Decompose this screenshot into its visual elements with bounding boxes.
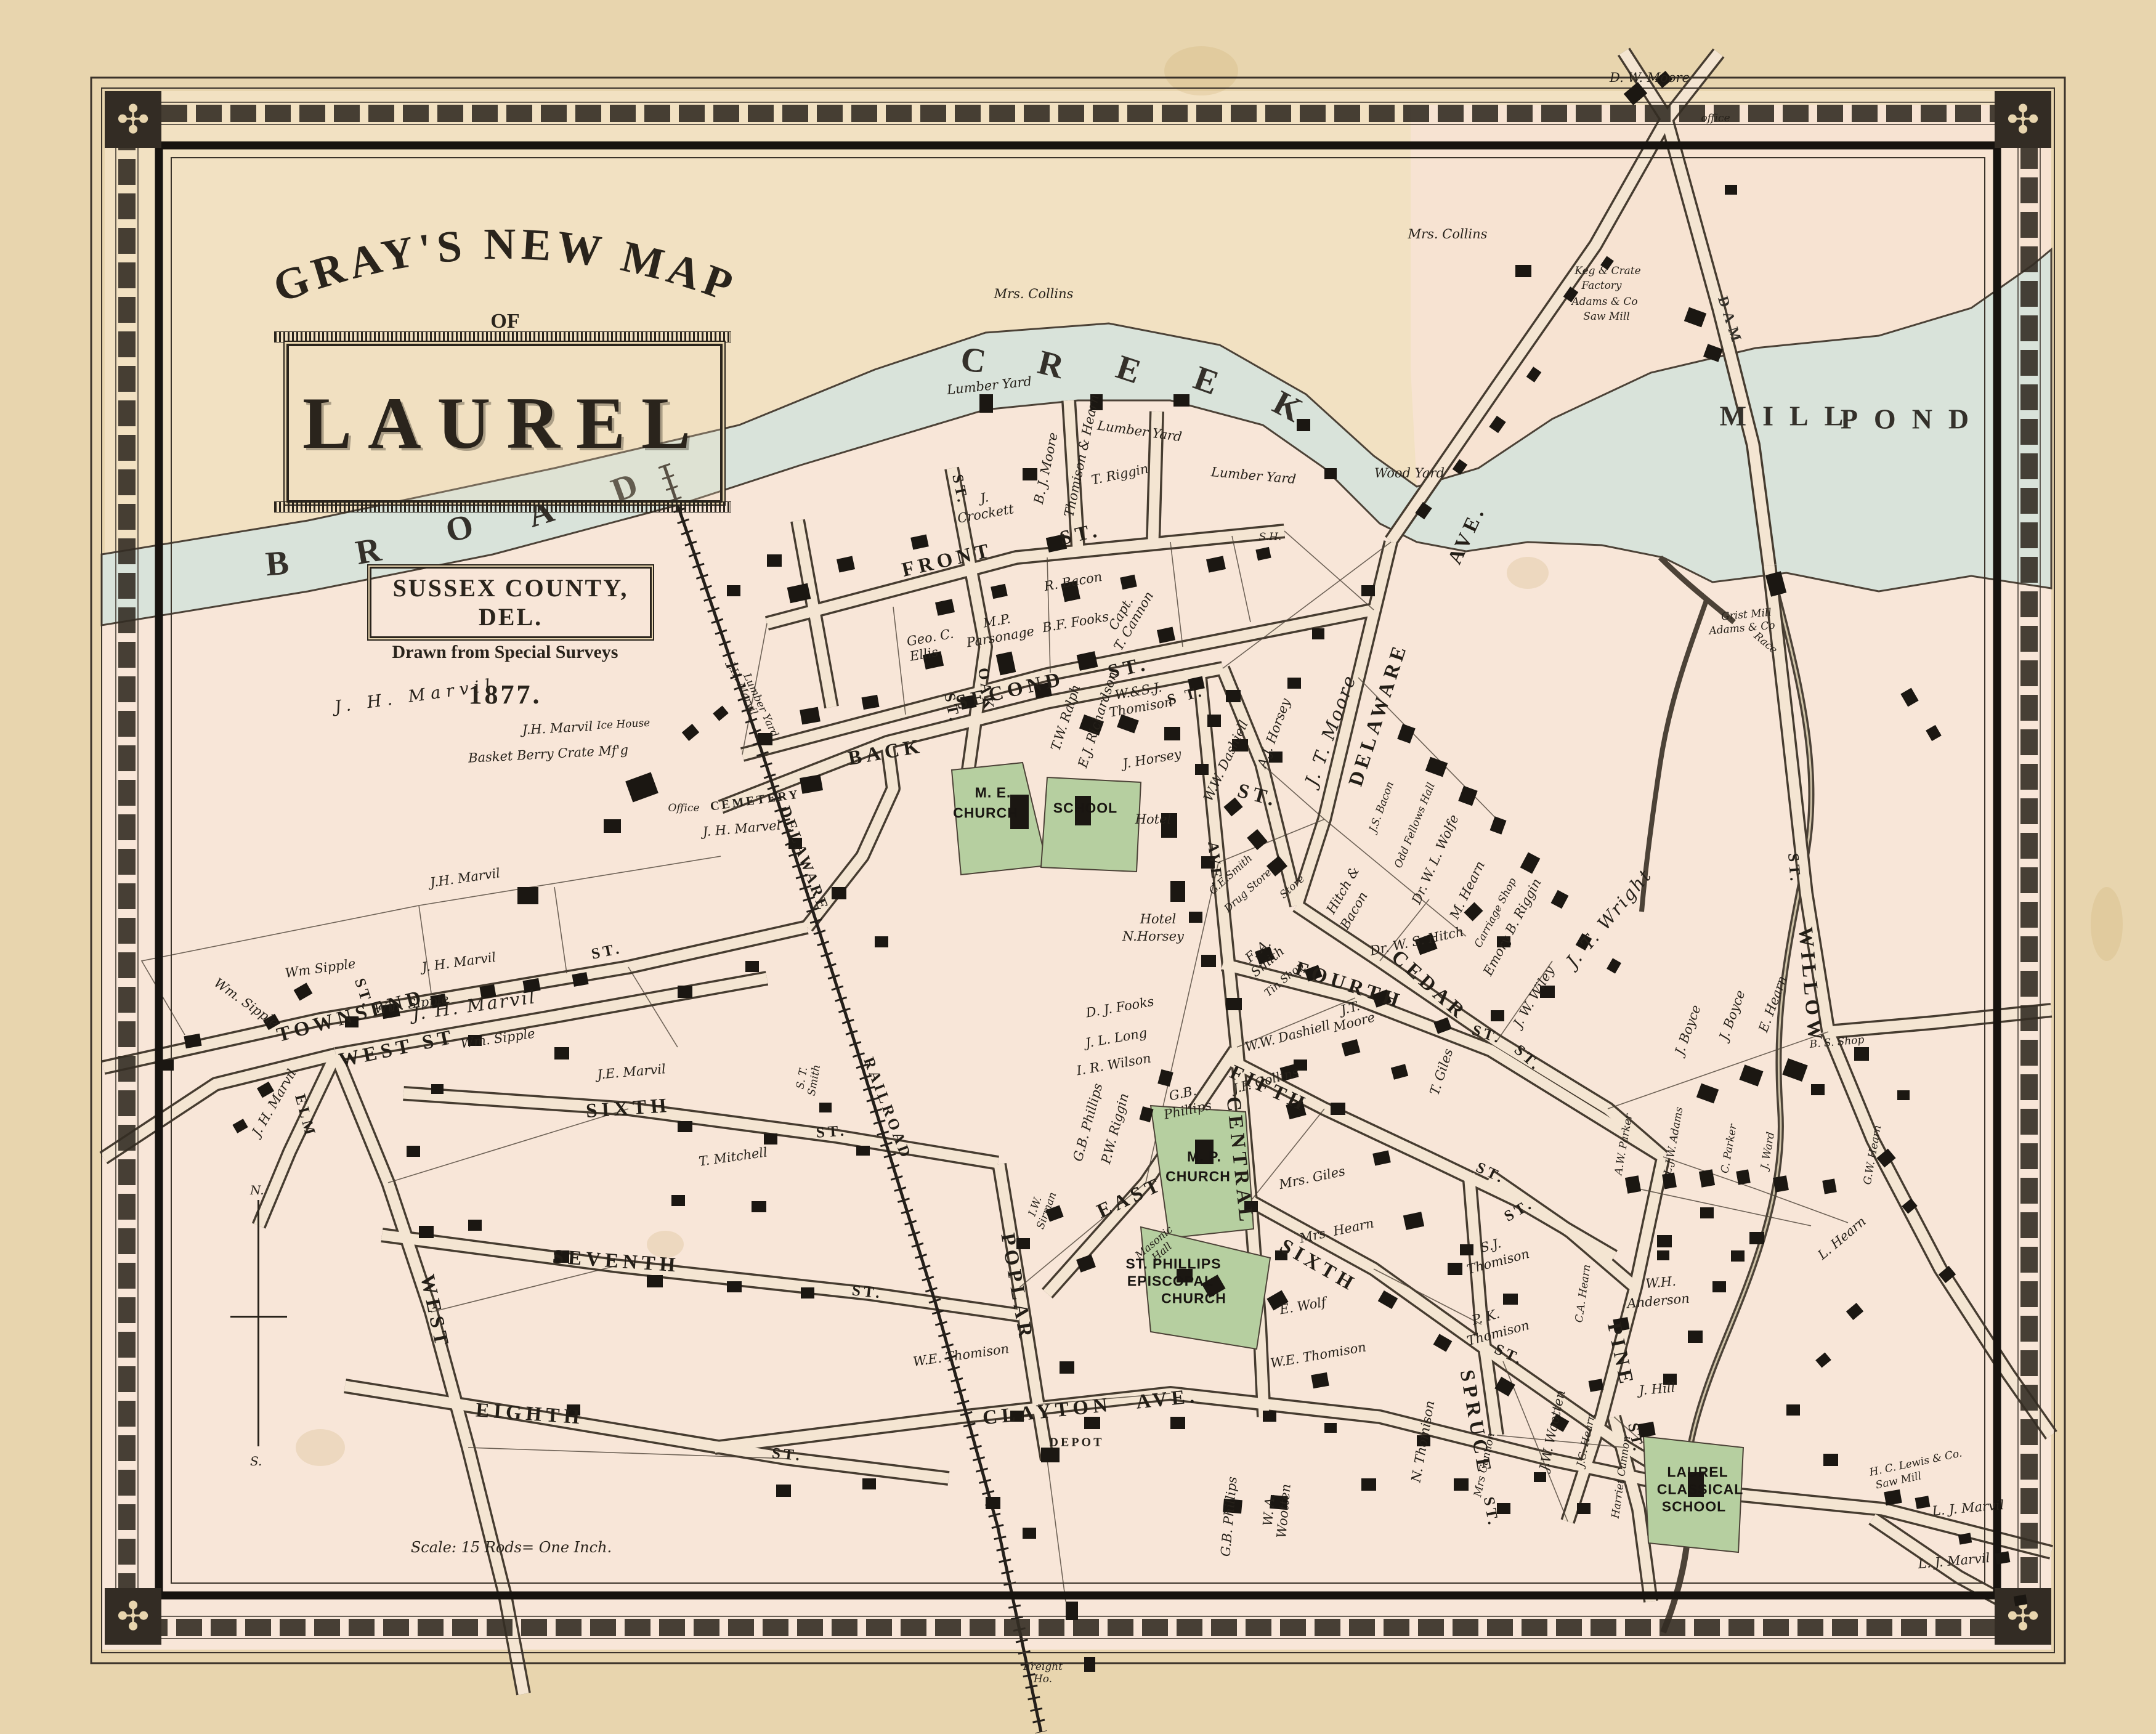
cartouche-rail-bottom (274, 501, 731, 513)
map-title-laurel: LAUREL (302, 381, 707, 466)
map-title-of: OF (490, 310, 519, 333)
title-arch: GRAY'S NEW MAP OF (259, 179, 752, 339)
map-surveys-note: Drawn from Special Surveys (259, 642, 752, 663)
laurel-map-page: { "map": { "title": { "line1": "GRAY'S N… (0, 0, 2156, 1734)
laurel-classical-lot (1643, 1436, 1743, 1552)
svg-text:✣: ✣ (2006, 98, 2040, 142)
map-year: 1877. (259, 679, 752, 710)
cartouche-rail-top (274, 331, 731, 342)
svg-text:GRAY'S NEW MAP: GRAY'S NEW MAP (267, 219, 744, 312)
map-scale-note: Scale: 15 Rods= One Inch. (382, 1539, 641, 1556)
svg-text:✣: ✣ (116, 1595, 150, 1639)
antique-map: ✣✣ ✣✣ BROADCREEKMILLPONDDAMD. W. Mooreof… (0, 0, 2156, 1734)
laurel-title-box: LAUREL (286, 344, 723, 503)
school-lot (1041, 777, 1141, 872)
map-subtitle: SUSSEX COUNTY, DEL. (393, 574, 629, 631)
title-cartouche: GRAY'S NEW MAP OF LAUREL SUSSEX COUNTY, … (259, 179, 752, 733)
sussex-subtitle-box: SUSSEX COUNTY, DEL. (370, 567, 652, 638)
svg-text:✣: ✣ (2006, 1595, 2040, 1639)
svg-text:✣: ✣ (116, 98, 150, 142)
mp-church-lot (1151, 1106, 1254, 1238)
map-title-line1: GRAY'S NEW MAP (267, 219, 744, 312)
